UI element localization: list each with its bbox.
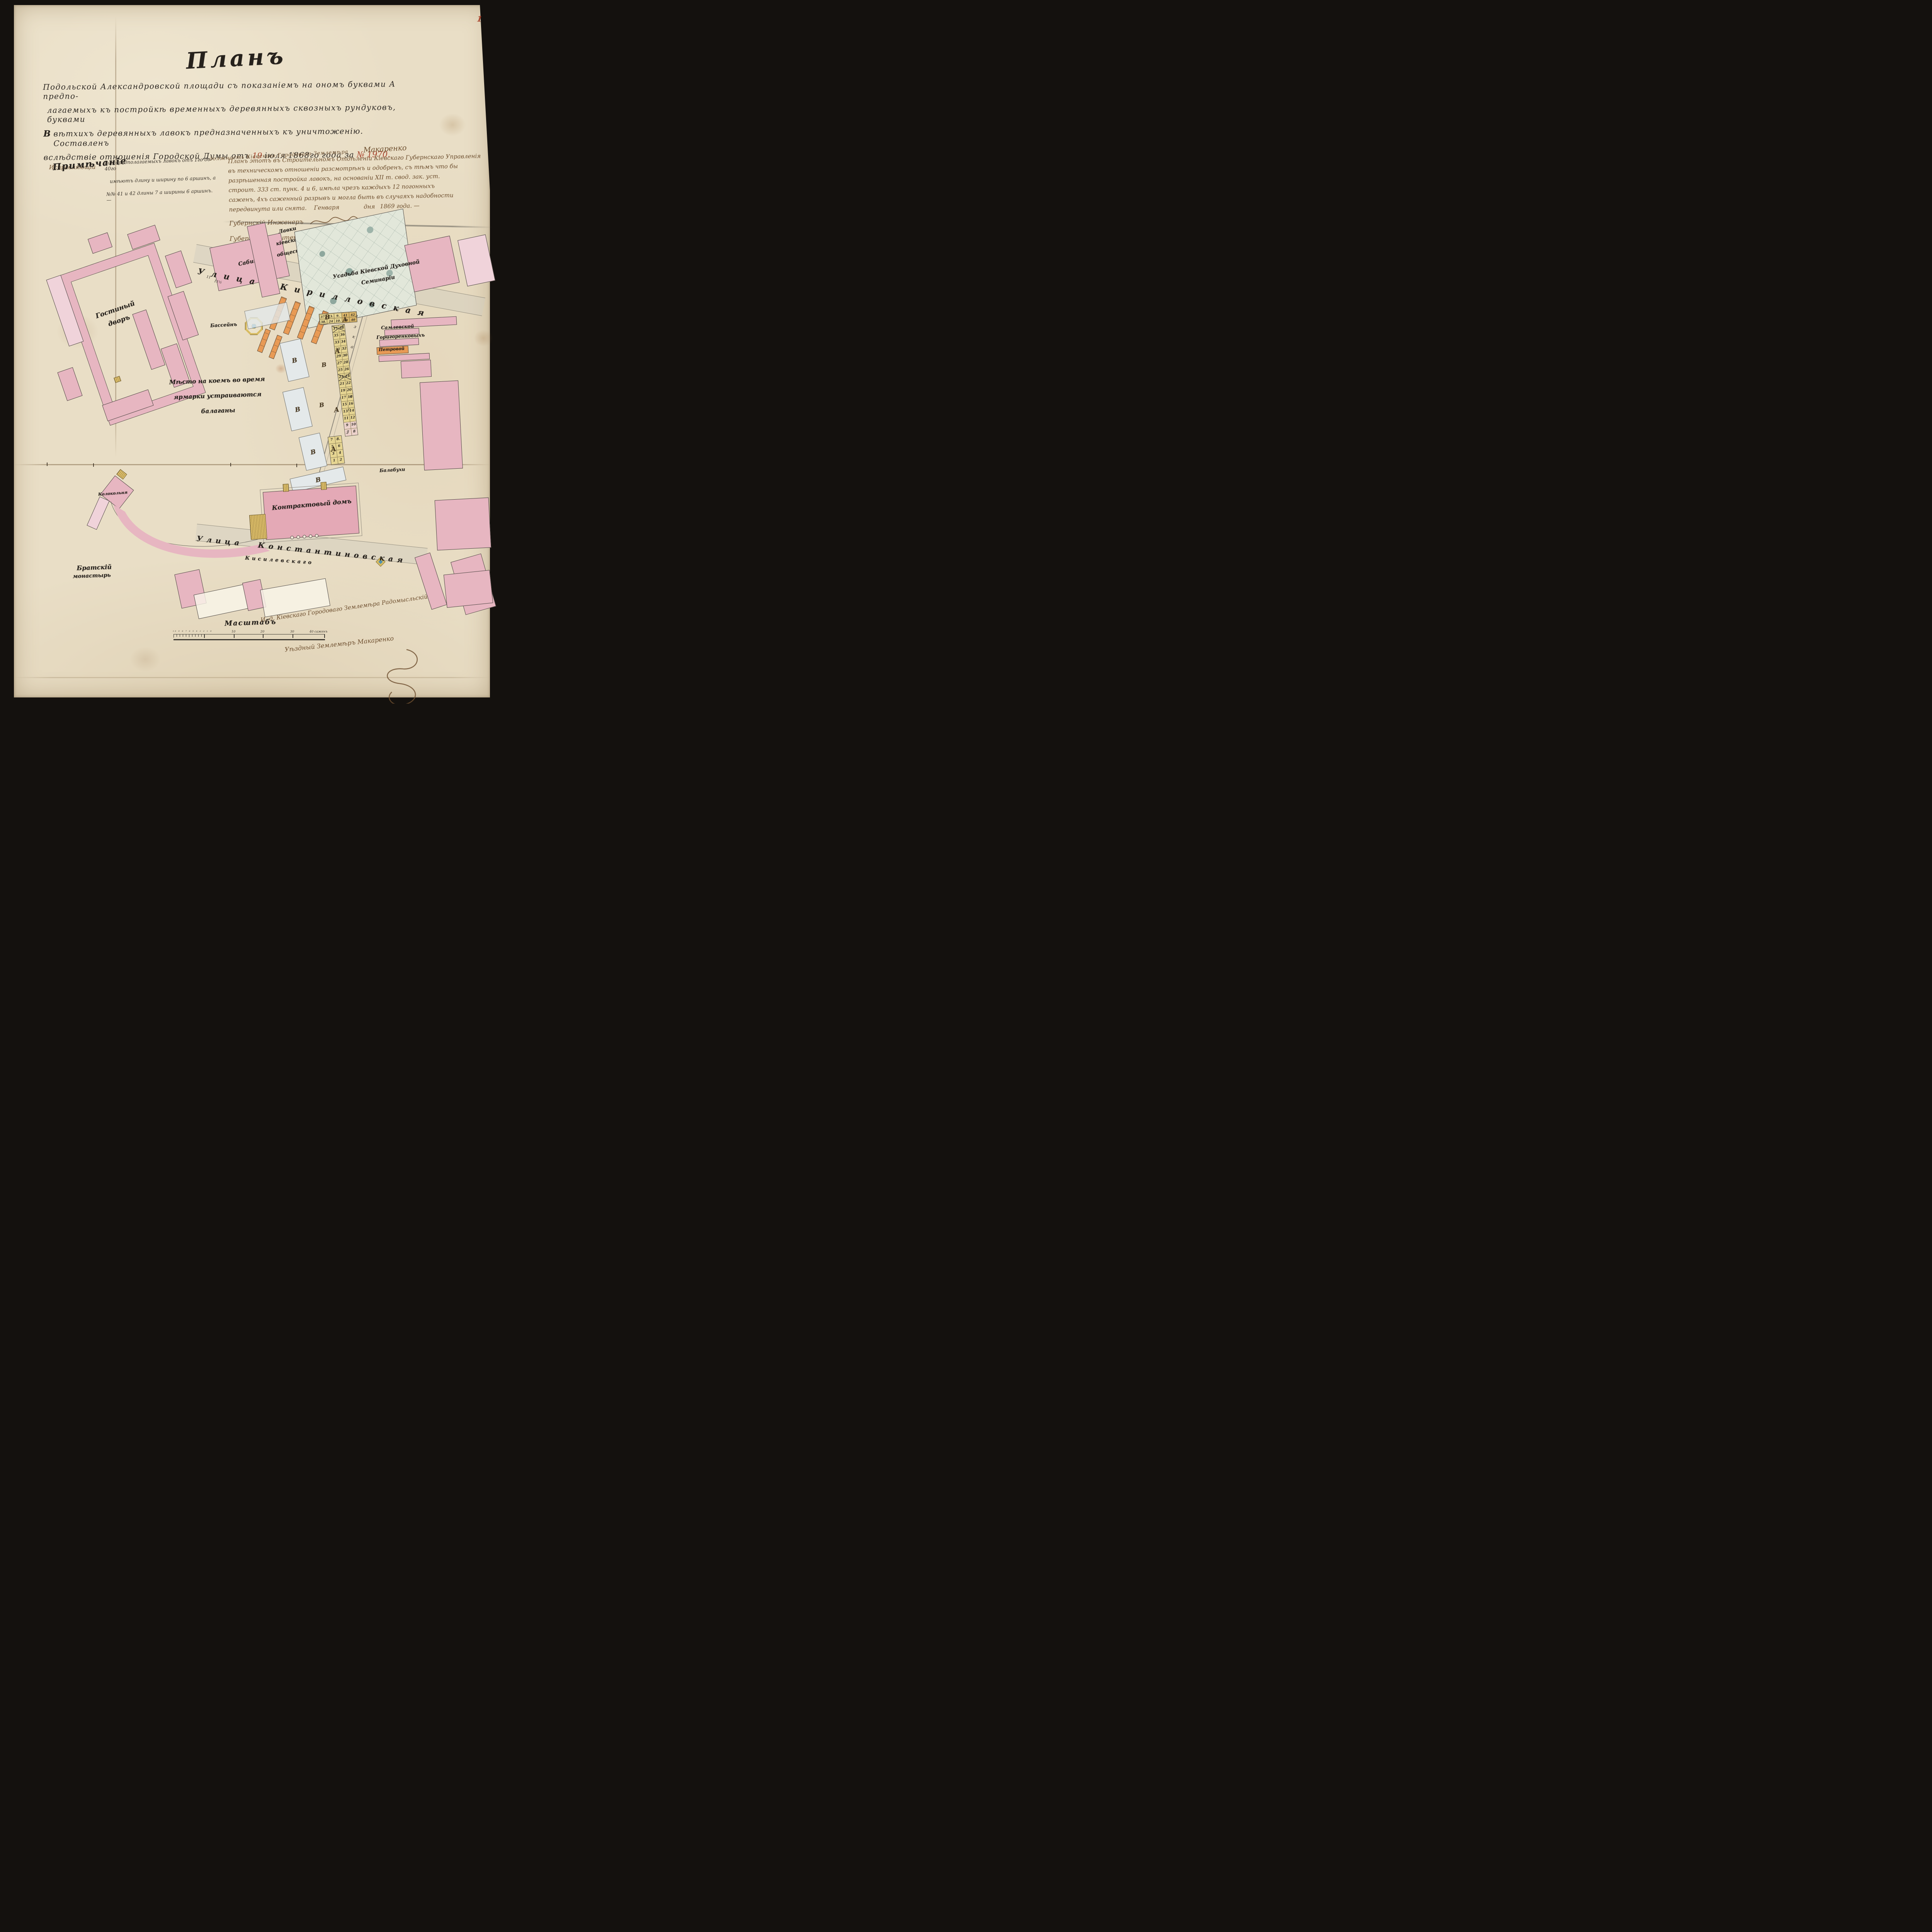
scale-tick-30: 30: [290, 630, 294, 633]
scale-bar: 10 9 8 7 6 5 4 3 2 1 0 10 20 30 40 сажен…: [173, 634, 325, 640]
right-building: [401, 360, 432, 378]
building-top-far-right: [457, 235, 495, 287]
letter-a-overlay: А: [333, 406, 340, 414]
scale-minor-digits: 10 9 8 7 6 5 4 3 2 1 0: [173, 630, 212, 633]
kontraktovy-label: Контрактовый домъ: [271, 497, 352, 512]
kontraktovy-chimney: [321, 482, 327, 490]
note-line-2: имѣютъ длину и ширину по 6 аршинъ, а: [110, 175, 217, 184]
gostiny-satellite: [57, 367, 82, 401]
letter-b-overlay: В: [324, 313, 330, 321]
scale-tick-20: 20: [260, 630, 264, 633]
stain: [474, 330, 493, 347]
survey-mark: з: [353, 324, 357, 329]
photo-backdrop: 1 Планъ Подольской Александровской площа…: [0, 0, 500, 704]
monastery-wall-fragment: [87, 497, 110, 530]
gostiny-satellite: [165, 250, 192, 288]
kiselevskogo-label: Кисилевскаго: [245, 555, 314, 566]
letter-b-inline: В: [43, 129, 51, 139]
fairground-line-3: балаганы: [158, 405, 278, 417]
stall-strip-vertical: 3738 3536 3334 3132 2930 2728 2526 2324 …: [332, 324, 358, 437]
scale-tick-10: 10: [231, 630, 235, 633]
description-line-2: лагаемыхъ къ постройкѣ временныхъ деревя…: [47, 102, 414, 124]
description-line-3: вѣтхихъ деревянныхъ лавокъ предназначенн…: [51, 126, 364, 138]
stitch-mark: [296, 464, 297, 467]
description-line-1: Подольской Александровской площади съ по…: [43, 79, 414, 101]
plan-sheet: 1 Планъ Подольской Александровской площа…: [14, 5, 490, 697]
note-line-3: №№ 41 и 42 длины 7 а ширины 6 аршинъ. —: [106, 187, 218, 203]
old-shop-strip-b: В: [279, 338, 310, 382]
plan-title: Планъ: [160, 41, 312, 75]
stall-row: 12: [331, 456, 345, 464]
letter-b: В: [294, 405, 301, 413]
balabuhi-label: Балабухи: [379, 466, 405, 473]
bratsky-label-2: монастырь: [58, 571, 125, 580]
letter-b: В: [291, 356, 298, 364]
right-building: [379, 338, 419, 347]
page-number: 1: [476, 14, 483, 24]
fold-crease-horizontal: [14, 464, 490, 465]
stitch-mark: [93, 463, 94, 467]
old-shop-strip-b: В: [282, 387, 313, 431]
fairground-line-2: ярмарки устраиваются: [158, 390, 277, 401]
approval-date-year: 1869 года. —: [380, 202, 420, 210]
flourish-signature: [369, 646, 427, 704]
gostiny-satellite: [127, 225, 160, 250]
monastery-arc-building: [114, 471, 270, 585]
bottom-building: [415, 553, 447, 610]
scale-tick-40: 40 саженъ: [310, 630, 327, 633]
old-shop-strip-b: [244, 302, 291, 329]
description-line-3-end: Составленъ: [53, 138, 109, 148]
letter-b-overlay: В: [321, 361, 327, 369]
fairground-label: Мѣсто на коемъ во время ярмарки устраива…: [157, 375, 278, 417]
kontraktovy-house: Контрактовый домъ: [263, 486, 359, 540]
survey-mark: к: [352, 334, 355, 339]
letter-b: В: [310, 447, 316, 456]
bratsky-label-1: Братскій: [63, 563, 125, 572]
approval-date-month: Генваря: [314, 204, 339, 211]
stitch-mark: [230, 463, 231, 466]
stall-cell: 10.: [334, 318, 342, 323]
right-building: [435, 497, 492, 550]
approval-date-day: дня: [364, 203, 375, 210]
stain: [439, 113, 466, 136]
bratsky-monastery-label: Братскій монастырь: [63, 563, 125, 580]
gostiny-satellite: [88, 232, 112, 253]
kontraktovy-chimney: [283, 484, 289, 492]
right-building-long: [420, 381, 463, 471]
stain: [130, 646, 161, 672]
letter-b-overlay: В: [319, 401, 325, 409]
letter-a-overlay: А: [342, 315, 348, 323]
stitch-mark: [47, 463, 48, 466]
basin-label: Бассейнъ: [210, 321, 237, 328]
note-block: №№ предполагаемыхъ лавокъ отъ 1го до 40г…: [104, 156, 218, 203]
bottom-building: [444, 570, 493, 608]
approval-line-6: передвинута или снята.: [229, 204, 307, 213]
